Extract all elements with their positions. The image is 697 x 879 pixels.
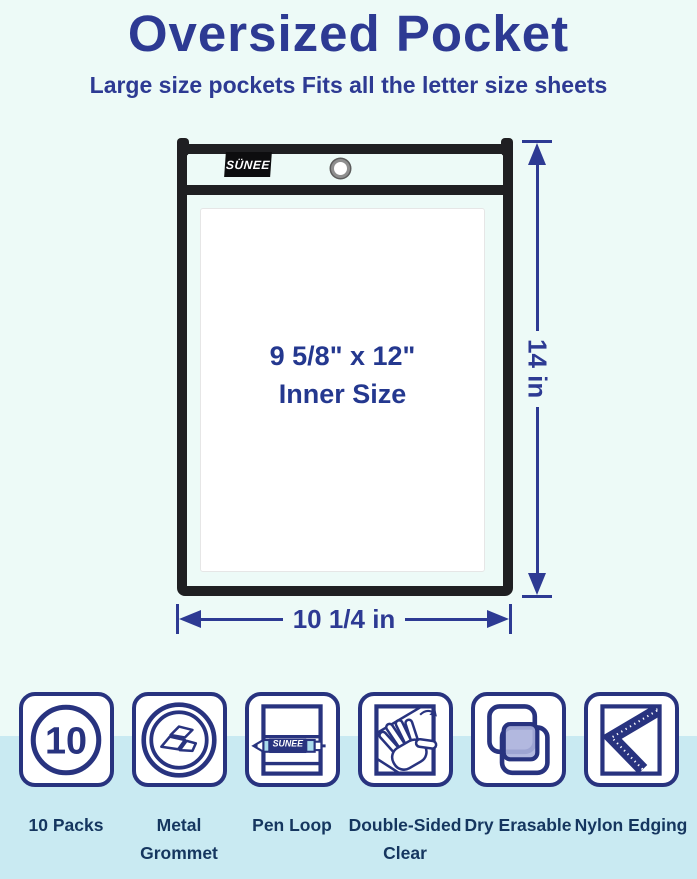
metal-grommet-icon xyxy=(132,692,227,787)
product-infographic: Oversized Pocket Large size pockets Fits… xyxy=(0,0,697,879)
feature-label: Double-Sided Clear xyxy=(349,811,462,867)
header: Oversized Pocket Large size pockets Fits… xyxy=(0,0,697,99)
grommet-icon xyxy=(331,159,350,178)
feature-double-sided-clear: Double-Sided Clear xyxy=(349,692,462,867)
inner-sheet: 9 5/8" x 12" Inner Size xyxy=(200,208,485,572)
dimension-line xyxy=(536,407,539,573)
inner-size-text: 9 5/8" x 12" Inner Size xyxy=(201,209,484,414)
edging-corner-right xyxy=(501,138,513,156)
arrow-down-icon xyxy=(528,573,546,595)
brand-logo: SÜNEE xyxy=(224,152,272,177)
dimension-tick xyxy=(509,604,512,634)
feature-metal-grommet: Metal Grommet xyxy=(123,692,236,867)
nylon-edging-icon xyxy=(584,692,679,787)
pocket-diagram: SÜNEE 9 5/8" x 12" Inner Size xyxy=(177,144,513,596)
header-band-divider xyxy=(185,185,505,195)
dry-erasable-icon xyxy=(471,692,566,787)
dimension-line xyxy=(536,165,539,331)
page-title: Oversized Pocket xyxy=(0,0,697,63)
pack-count: 10 xyxy=(45,720,87,762)
width-label: 10 1/4 in xyxy=(293,604,396,635)
height-dimension: 14 in xyxy=(521,140,553,598)
feature-label: Nylon Edging xyxy=(575,811,688,839)
feature-label: Pen Loop xyxy=(236,811,349,839)
double-sided-clear-icon xyxy=(358,692,453,787)
feature-row: 10 10 Packs Metal Grommet xyxy=(0,692,697,867)
feature-nylon-edging: Nylon Edging xyxy=(575,692,688,867)
arrow-right-icon xyxy=(487,610,509,628)
dimension-line xyxy=(201,618,283,621)
feature-label: Metal Grommet xyxy=(123,811,236,867)
feature-10-packs: 10 10 Packs xyxy=(10,692,123,867)
pen-loop-icon: SUNEE xyxy=(245,692,340,787)
arrow-left-icon xyxy=(179,610,201,628)
page-subtitle: Large size pockets Fits all the letter s… xyxy=(0,63,697,99)
dimension-tick xyxy=(522,595,552,598)
edging-corner-left xyxy=(177,138,189,156)
feature-dry-erasable: Dry Erasable xyxy=(462,692,575,867)
height-label: 14 in xyxy=(522,339,553,398)
width-dimension: 10 1/4 in xyxy=(176,603,512,635)
arrow-up-icon xyxy=(528,143,546,165)
feature-label: Dry Erasable xyxy=(462,811,575,839)
ten-packs-badge-icon: 10 xyxy=(19,692,114,787)
feature-pen-loop: SUNEE Double-Sided Clear Pen Loop xyxy=(236,692,349,867)
dimension-line xyxy=(405,618,487,621)
feature-label: 10 Packs xyxy=(10,811,123,839)
inner-size-line1: 9 5/8" x 12" xyxy=(201,337,484,375)
inner-size-line2: Inner Size xyxy=(201,375,484,413)
pen-brand-text: SUNEE xyxy=(273,738,304,748)
